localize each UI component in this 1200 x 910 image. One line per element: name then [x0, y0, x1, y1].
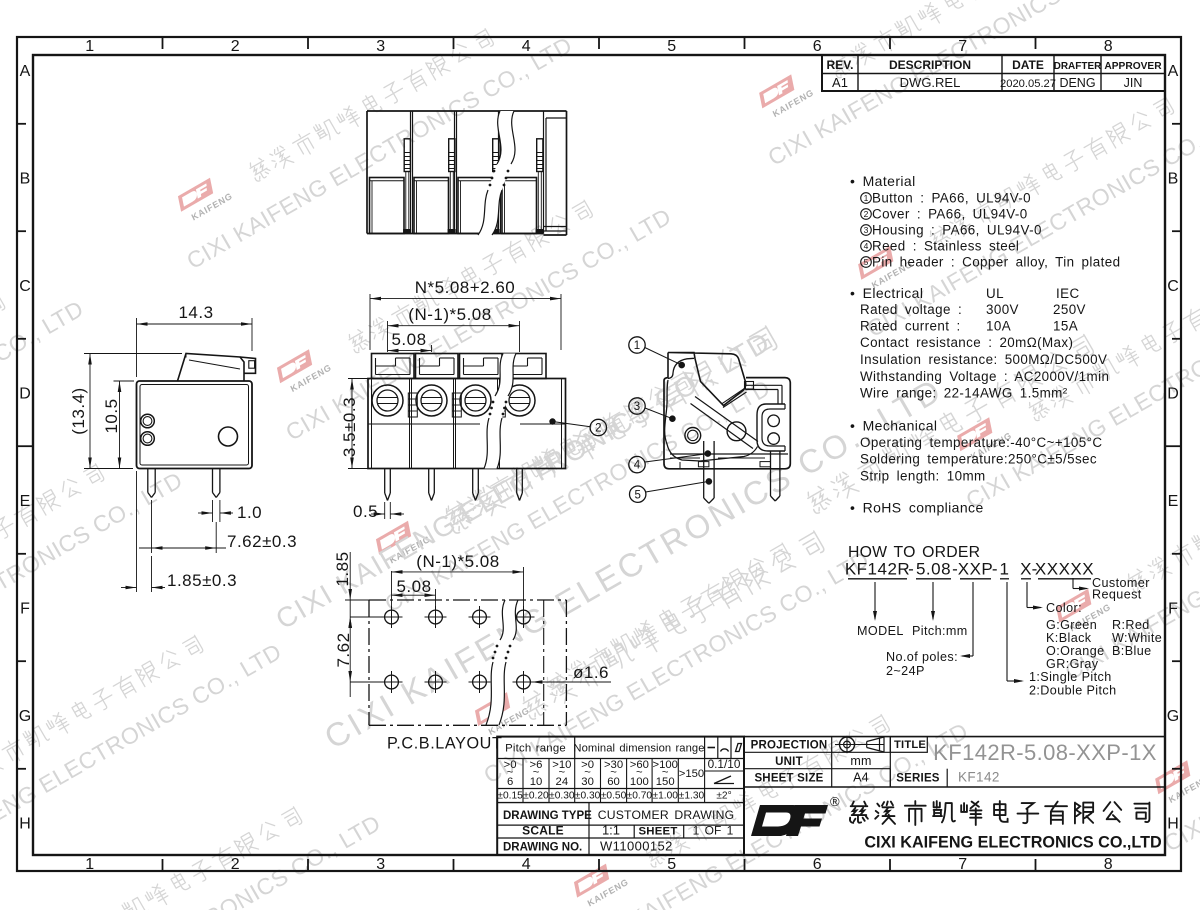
- svg-text:No.of poles:: No.of poles:: [886, 650, 958, 664]
- svg-text:KF142R: KF142R: [845, 560, 910, 579]
- svg-text:SCALE: SCALE: [522, 824, 564, 838]
- svg-text:A4: A4: [853, 771, 869, 785]
- svg-text:7: 7: [958, 38, 967, 55]
- svg-text:300V: 300V: [986, 302, 1019, 317]
- svg-text:3: 3: [376, 38, 385, 55]
- svg-text:±0.20: ±0.20: [523, 791, 549, 802]
- svg-text:7.62: 7.62: [334, 632, 353, 667]
- svg-text:G: G: [1167, 708, 1179, 725]
- svg-text:5.08: 5.08: [396, 577, 431, 596]
- svg-text:Housing : PA66, UL94V-0: Housing : PA66, UL94V-0: [872, 223, 1042, 238]
- svg-text:SHEET SIZE: SHEET SIZE: [754, 773, 823, 785]
- svg-text:• Mechanical: • Mechanical: [850, 418, 937, 434]
- svg-text:8: 8: [1104, 38, 1113, 55]
- svg-text:Rated voltage :: Rated voltage :: [860, 302, 962, 317]
- svg-text:2:Double Pitch: 2:Double Pitch: [1029, 684, 1117, 698]
- svg-text:DATE: DATE: [1012, 58, 1044, 72]
- svg-text:0.5: 0.5: [353, 502, 378, 521]
- svg-text:1: 1: [85, 38, 94, 55]
- svg-text:1.85: 1.85: [333, 551, 352, 586]
- svg-text:2020.05.27: 2020.05.27: [1000, 78, 1056, 90]
- svg-text:1:1: 1:1: [602, 823, 620, 838]
- svg-text:±1.30: ±1.30: [679, 791, 705, 802]
- svg-text:H: H: [1167, 816, 1179, 833]
- svg-text:• Material: • Material: [850, 173, 916, 189]
- svg-text:15A: 15A: [1053, 319, 1078, 334]
- svg-text:Cover : PA66, UL94V-0: Cover : PA66, UL94V-0: [872, 207, 1028, 222]
- svg-text:XXXXX: XXXXX: [1035, 560, 1094, 579]
- svg-text:B: B: [1168, 171, 1179, 188]
- svg-text:2~24P: 2~24P: [886, 664, 925, 678]
- svg-text:F: F: [20, 601, 30, 618]
- svg-text:6: 6: [813, 38, 822, 55]
- svg-text:1.0: 1.0: [237, 503, 262, 522]
- svg-text:4: 4: [522, 856, 531, 873]
- svg-text:100: 100: [630, 776, 649, 788]
- svg-text:7.62±0.3: 7.62±0.3: [227, 532, 297, 551]
- svg-text:IEC: IEC: [1056, 286, 1080, 301]
- svg-text:A1: A1: [832, 75, 848, 90]
- svg-text:Wire range: 22-14AWG 1.5mm²: Wire range: 22-14AWG 1.5mm²: [860, 386, 1068, 401]
- svg-text:W11000152: W11000152: [600, 839, 673, 854]
- svg-text:-: -: [908, 560, 914, 579]
- svg-text:B:Blue: B:Blue: [1112, 644, 1152, 658]
- svg-text:Color:: Color:: [1046, 601, 1082, 615]
- svg-text:DWG.REL: DWG.REL: [900, 75, 961, 90]
- svg-text:DRAFTER: DRAFTER: [1054, 61, 1103, 72]
- svg-text:±0.30: ±0.30: [575, 791, 601, 802]
- svg-text:Pitch range: Pitch range: [505, 743, 566, 755]
- svg-text:6: 6: [507, 776, 513, 788]
- svg-text:±1.00: ±1.00: [652, 791, 678, 802]
- svg-text:(N-1)*5.08: (N-1)*5.08: [416, 552, 499, 571]
- svg-text:60: 60: [607, 776, 620, 788]
- svg-text:• Electrical: • Electrical: [850, 285, 923, 301]
- svg-text:2: 2: [231, 38, 240, 55]
- svg-text:D: D: [1167, 386, 1179, 403]
- svg-text:TITLE: TITLE: [894, 739, 926, 751]
- svg-text:Button : PA66, UL94V-0: Button : PA66, UL94V-0: [872, 191, 1031, 206]
- svg-text:±0.15: ±0.15: [497, 791, 523, 802]
- svg-text:MODEL: MODEL: [857, 624, 904, 638]
- svg-text:K:Black: K:Black: [1046, 631, 1092, 645]
- svg-text:4: 4: [522, 38, 531, 55]
- svg-text:6: 6: [813, 856, 822, 873]
- svg-text:1: 1: [634, 340, 640, 352]
- svg-text:2: 2: [595, 423, 601, 435]
- svg-text:1: 1: [864, 193, 869, 203]
- svg-text:5: 5: [634, 489, 640, 501]
- svg-text:SHEET: SHEET: [639, 826, 678, 838]
- svg-text:C: C: [1167, 278, 1179, 295]
- svg-text:DENG: DENG: [1059, 76, 1095, 90]
- svg-text:UL: UL: [986, 286, 1004, 301]
- svg-text:3: 3: [376, 856, 385, 873]
- svg-text:GR:Gray: GR:Gray: [1046, 657, 1099, 671]
- svg-text:G:Green: G:Green: [1046, 618, 1097, 632]
- svg-text:Pitch:mm: Pitch:mm: [912, 624, 968, 638]
- svg-text:CIXI KAIFENG ELECTRONICS CO.,L: CIXI KAIFENG ELECTRONICS CO.,LTD: [864, 834, 1162, 852]
- svg-text:N*5.08+2.60: N*5.08+2.60: [415, 278, 516, 297]
- svg-text:0.1/10: 0.1/10: [708, 757, 741, 771]
- svg-text:DESCRIPTION: DESCRIPTION: [889, 58, 971, 72]
- svg-text:CUSTOMER DRAWING: CUSTOMER DRAWING: [598, 808, 735, 822]
- svg-text:PROJECTION: PROJECTION: [751, 740, 828, 752]
- svg-text:>150: >150: [679, 768, 704, 780]
- svg-text:5: 5: [667, 856, 676, 873]
- svg-text:10.5: 10.5: [102, 398, 121, 433]
- svg-text:UNIT: UNIT: [775, 756, 803, 768]
- svg-text:2: 2: [864, 209, 869, 219]
- svg-text:Insulation resistance: 500MΩ/D: Insulation resistance: 500MΩ/DC500V: [860, 352, 1107, 367]
- svg-text:14.3: 14.3: [178, 303, 213, 322]
- svg-text:24: 24: [556, 776, 569, 788]
- svg-text:A: A: [20, 63, 31, 80]
- svg-text:(13.4): (13.4): [69, 387, 88, 434]
- svg-text:• RoHS compliance: • RoHS compliance: [850, 500, 984, 516]
- svg-text:KF142: KF142: [958, 770, 1000, 785]
- svg-text:Strip length: 10mm: Strip length: 10mm: [860, 469, 986, 484]
- svg-text:1: 1: [85, 856, 94, 873]
- svg-text:X: X: [1020, 560, 1032, 579]
- svg-text:P.C.B.LAYOUT: P.C.B.LAYOUT: [387, 735, 502, 753]
- svg-text:4: 4: [634, 460, 641, 472]
- svg-text:Reed : Stainless steel: Reed : Stainless steel: [872, 239, 1019, 254]
- svg-text:E: E: [20, 493, 31, 510]
- svg-text:1:Single Pitch: 1:Single Pitch: [1029, 670, 1112, 684]
- svg-text:Pin header : Copper alloy, Tin: Pin header : Copper alloy, Tin plated: [872, 255, 1120, 270]
- svg-text:DRAWING TYPE: DRAWING TYPE: [503, 810, 592, 822]
- svg-text:E: E: [1168, 493, 1179, 510]
- svg-text:®: ®: [830, 794, 840, 809]
- svg-text:KF142R-5.08-XXP-1X: KF142R-5.08-XXP-1X: [933, 740, 1157, 765]
- svg-text:C: C: [19, 278, 31, 295]
- svg-text:Withstanding Voltage : AC2000V: Withstanding Voltage : AC2000V/1min: [860, 369, 1109, 384]
- svg-text:3.5±0.3: 3.5±0.3: [340, 397, 359, 457]
- svg-text:O:Orange: O:Orange: [1046, 644, 1105, 658]
- svg-text:R:Red: R:Red: [1112, 618, 1150, 632]
- svg-text:H: H: [19, 816, 31, 833]
- svg-text:8: 8: [1104, 856, 1113, 873]
- svg-text:REV.: REV.: [827, 58, 854, 72]
- svg-text:HOW TO ORDER: HOW TO ORDER: [848, 544, 980, 561]
- svg-text:mm: mm: [850, 754, 871, 768]
- svg-text:JIN: JIN: [1124, 76, 1143, 90]
- svg-text:1.85±0.3: 1.85±0.3: [167, 571, 237, 590]
- svg-text:10A: 10A: [986, 319, 1011, 334]
- svg-text:A: A: [1168, 63, 1179, 80]
- svg-text:±0.50: ±0.50: [601, 791, 627, 802]
- svg-text:5: 5: [667, 38, 676, 55]
- svg-text:G: G: [19, 708, 31, 725]
- svg-text:±2°: ±2°: [716, 791, 731, 802]
- svg-text:Operating temperature:-40°C~+1: Operating temperature:-40°C~+105°C: [860, 435, 1102, 450]
- svg-text:10: 10: [530, 776, 543, 788]
- svg-text:150: 150: [656, 776, 675, 788]
- svg-text:CIXI KAIFENG ELECTRONICS CO.,: CIXI KAIFENG ELECTRONICS CO., LTD: [0, 809, 385, 910]
- svg-text:5: 5: [864, 257, 869, 267]
- svg-text:±0.70: ±0.70: [627, 791, 653, 802]
- svg-text:Request: Request: [1092, 588, 1142, 602]
- svg-text:30: 30: [581, 776, 594, 788]
- svg-text:SERIES: SERIES: [896, 773, 940, 785]
- svg-text:3: 3: [634, 401, 640, 413]
- svg-text:3: 3: [864, 225, 869, 235]
- svg-text:(N-1)*5.08: (N-1)*5.08: [408, 305, 491, 324]
- svg-text:APPROVER: APPROVER: [1104, 61, 1162, 72]
- svg-text:Contact resistance : 20mΩ(Max): Contact resistance : 20mΩ(Max): [860, 335, 1073, 350]
- svg-text:±0.30: ±0.30: [549, 791, 575, 802]
- svg-text:DRAWING NO.: DRAWING NO.: [503, 842, 582, 854]
- svg-text:2: 2: [231, 856, 240, 873]
- svg-text:7: 7: [958, 856, 967, 873]
- svg-text:F: F: [1168, 601, 1178, 618]
- svg-text:-: -: [992, 560, 998, 579]
- svg-text:Rated current :: Rated current :: [860, 319, 961, 334]
- svg-text:XXP: XXP: [958, 560, 994, 579]
- svg-text:B: B: [20, 171, 31, 188]
- svg-text:ø1.6: ø1.6: [573, 663, 609, 682]
- svg-text:CIXI KAIFENG ELECTRONICS CO.,: CIXI KAIFENG ELECTRONICS CO., LTD: [182, 31, 576, 274]
- svg-text:Soldering temperature:250°C±5/: Soldering temperature:250°C±5/5sec: [860, 452, 1097, 467]
- svg-text:5.08: 5.08: [916, 560, 951, 579]
- svg-text:4: 4: [864, 241, 869, 251]
- svg-text:Nominal dimension range: Nominal dimension range: [573, 743, 704, 755]
- svg-text:1 OF 1: 1 OF 1: [693, 824, 734, 838]
- svg-text:W:White: W:White: [1112, 631, 1162, 645]
- svg-text:5.08: 5.08: [391, 330, 426, 349]
- svg-text:1: 1: [1000, 560, 1010, 579]
- svg-text:250V: 250V: [1053, 302, 1086, 317]
- svg-text:D: D: [19, 386, 31, 403]
- svg-text:CIXI KAIFENG ELECTRONICS CO.,: CIXI KAIFENG ELECTRONICS CO., LTD: [0, 638, 286, 881]
